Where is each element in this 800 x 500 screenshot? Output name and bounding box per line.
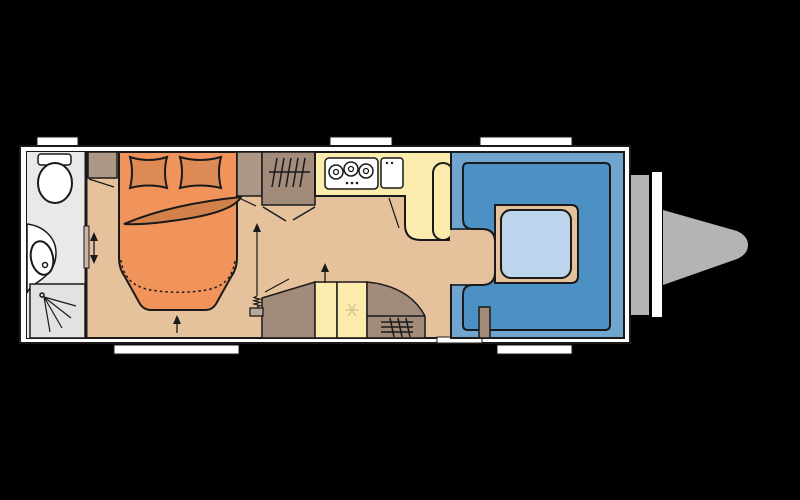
- window-dinette-bottom: [497, 345, 572, 354]
- window-kitchen: [330, 137, 392, 146]
- dinette-access-floor: [450, 230, 496, 284]
- bedside-cabinet-right: [237, 152, 262, 196]
- pillow-left: [130, 157, 167, 188]
- floorplan-svg: [0, 0, 800, 500]
- washroom-sliding-door: [84, 226, 89, 268]
- caravan-floorplan-canvas: [0, 0, 800, 500]
- tap-dot: [386, 162, 388, 164]
- window-washroom: [37, 137, 78, 146]
- window-bedroom: [114, 345, 239, 354]
- front-panel: [652, 172, 662, 317]
- seat-end-post: [479, 307, 490, 338]
- door-stop-tab: [250, 308, 263, 316]
- tap-dot: [391, 162, 393, 164]
- dinette: [450, 152, 624, 338]
- toilet-icon: [38, 163, 72, 203]
- shower-tray: [30, 284, 85, 338]
- window-dinette-top: [480, 137, 572, 146]
- pillow-right: [180, 157, 221, 188]
- dinette-table: [501, 210, 571, 278]
- bedside-shelf-left: [88, 152, 117, 178]
- washroom: [27, 152, 98, 338]
- kitchen-unit: [315, 282, 337, 338]
- wardrobe-body: [262, 152, 315, 205]
